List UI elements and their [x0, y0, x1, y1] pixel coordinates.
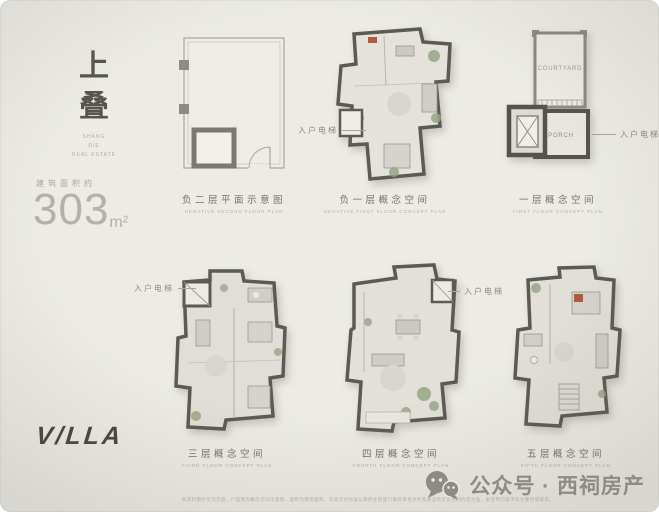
red-accent-pillow — [574, 294, 583, 302]
sink — [531, 357, 538, 364]
elevator-label: 入户电梯 — [620, 129, 659, 140]
caption-zh: 一层概念空间 — [519, 192, 597, 206]
villa-logo: V/LLA — [34, 422, 124, 451]
plan-1f-drawing: COURTYARD PORCH — [506, 28, 606, 178]
caption-5f: 五层概念空间 FIFTH FLOOR CONCEPT PLAN — [511, 446, 621, 468]
bed — [384, 144, 410, 168]
caption-en: FOURTH FLOOR CONCEPT PLAN — [353, 463, 450, 468]
dining-table — [396, 320, 420, 334]
wardrobe — [596, 334, 608, 368]
area-unit: m² — [109, 214, 128, 232]
subtitle-line: SHANG — [83, 134, 106, 140]
elevator-callout-3f: 入户电梯 — [134, 283, 196, 294]
plan-b1 — [324, 26, 464, 186]
watermark: 公众号 · 西祠房产 — [423, 469, 645, 501]
stairs — [559, 384, 579, 410]
plant — [364, 318, 372, 326]
red-accent-furniture — [368, 37, 377, 43]
leader-line — [178, 288, 196, 289]
elevator-callout-4f: 入户电梯 — [448, 286, 504, 297]
caption-en: NEGATIVE FIRST FLOOR CONCEPT PLAN — [324, 209, 447, 214]
caption-b2: 负二层平面示意图 NEGATIVE SECOND FLOOR PLAN — [178, 192, 290, 214]
column-marker — [179, 104, 189, 114]
caption-zh: 五层概念空间 — [527, 446, 605, 460]
plant — [429, 401, 439, 411]
plan-1f: COURTYARD PORCH — [506, 28, 606, 178]
bathroom-fixture — [248, 288, 272, 302]
plant — [220, 284, 228, 292]
plant — [598, 390, 606, 398]
plant — [531, 283, 541, 293]
plan-b1-drawing — [324, 26, 464, 186]
caption-3f: 三层概念空间 THIRD FLOOR CONCEPT PLAN — [172, 446, 282, 468]
plant — [191, 411, 201, 421]
bed — [248, 386, 270, 408]
wechat-icon — [423, 469, 461, 501]
elevator-label: 入户电梯 — [134, 283, 174, 294]
caption-zh: 三层概念空间 — [188, 446, 266, 460]
column-marker — [179, 60, 189, 70]
sofa — [372, 354, 404, 366]
caption-en: FIRST FLOOR CONCEPT PLAN — [513, 209, 603, 214]
caption-b1: 负一层概念空间 NEGATIVE FIRST FLOOR CONCEPT PLA… — [330, 192, 440, 214]
rug — [387, 92, 411, 116]
caption-en: NEGATIVE SECOND FLOOR PLAN — [185, 209, 284, 214]
caption-en: THIRD FLOOR CONCEPT PLAN — [182, 463, 273, 468]
plant — [431, 113, 441, 123]
subtitle-line: REAL ESTATE — [72, 152, 116, 158]
porch-text: PORCH — [548, 133, 574, 139]
caption-1f: 一层概念空间 FIRST FLOOR CONCEPT PLAN — [503, 192, 613, 214]
plant — [428, 50, 440, 62]
title-char-die: 叠 — [79, 92, 109, 122]
elevator-label: 入户电梯 — [464, 286, 504, 297]
plan-b2-drawing — [172, 34, 296, 184]
plan-5f — [504, 264, 626, 432]
area-figure: 303 m² — [33, 188, 128, 232]
subtitle-line: DIE — [88, 143, 99, 149]
elevator-callout-1f: 入户电梯 — [592, 129, 659, 140]
area-value: 303 — [33, 188, 109, 232]
bed — [248, 322, 272, 342]
plant — [417, 387, 431, 401]
watermark-text: 公众号 · 西祠房产 — [469, 470, 645, 500]
leader-line — [592, 134, 616, 135]
caption-zh: 四层概念空间 — [362, 446, 440, 460]
floorplan-poster: 上 叠 SHANG DIE REAL ESTATE 建筑面积约 303 m² V… — [0, 0, 659, 512]
sink — [253, 292, 259, 298]
sofa — [422, 84, 437, 112]
caption-zh: 负一层概念空间 — [339, 192, 430, 206]
bathtub — [524, 334, 542, 346]
vertical-title: 上 叠 — [74, 52, 114, 122]
leader-line — [342, 130, 366, 131]
elevator-callout-b1: 入户电梯 — [298, 125, 366, 136]
wardrobe — [196, 320, 210, 346]
rug — [205, 355, 227, 377]
plant — [389, 167, 399, 177]
plan-4f-drawing — [338, 262, 463, 434]
leader-line — [448, 291, 460, 292]
plan-4f — [338, 262, 463, 434]
caption-zh: 负二层平面示意图 — [182, 192, 286, 206]
plan-5f-drawing — [504, 264, 626, 432]
plan-b2 — [172, 34, 296, 184]
balcony — [366, 412, 410, 423]
elevator-shaft — [194, 130, 234, 166]
elevator-label: 入户电梯 — [298, 125, 338, 136]
table — [396, 46, 414, 56]
plant — [274, 348, 282, 356]
title-char-shang: 上 — [79, 52, 109, 82]
title-subtitle: SHANG DIE REAL ESTATE — [54, 134, 134, 158]
caption-en: FIFTH FLOOR CONCEPT PLAN — [521, 463, 611, 468]
rug — [554, 342, 574, 362]
courtyard-text: COURTYARD — [538, 66, 583, 72]
caption-4f: 四层概念空间 FOURTH FLOOR CONCEPT PLAN — [346, 446, 456, 468]
rug — [380, 365, 406, 391]
